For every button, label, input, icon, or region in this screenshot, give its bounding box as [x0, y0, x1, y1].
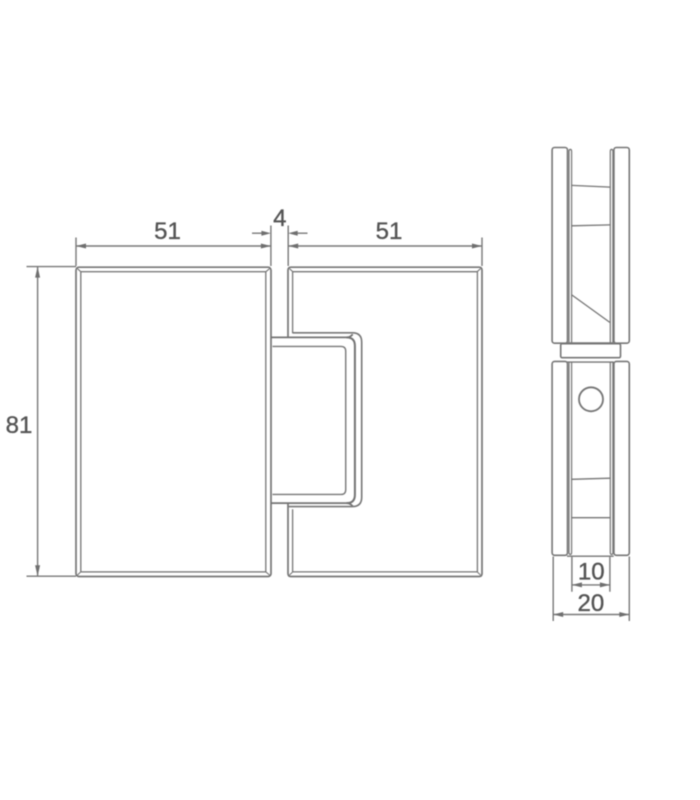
svg-text:10: 10 [578, 559, 605, 586]
svg-text:4: 4 [273, 205, 286, 232]
svg-text:51: 51 [376, 218, 403, 245]
svg-text:81: 81 [6, 412, 33, 439]
svg-text:20: 20 [578, 590, 605, 617]
svg-text:51: 51 [154, 218, 181, 245]
